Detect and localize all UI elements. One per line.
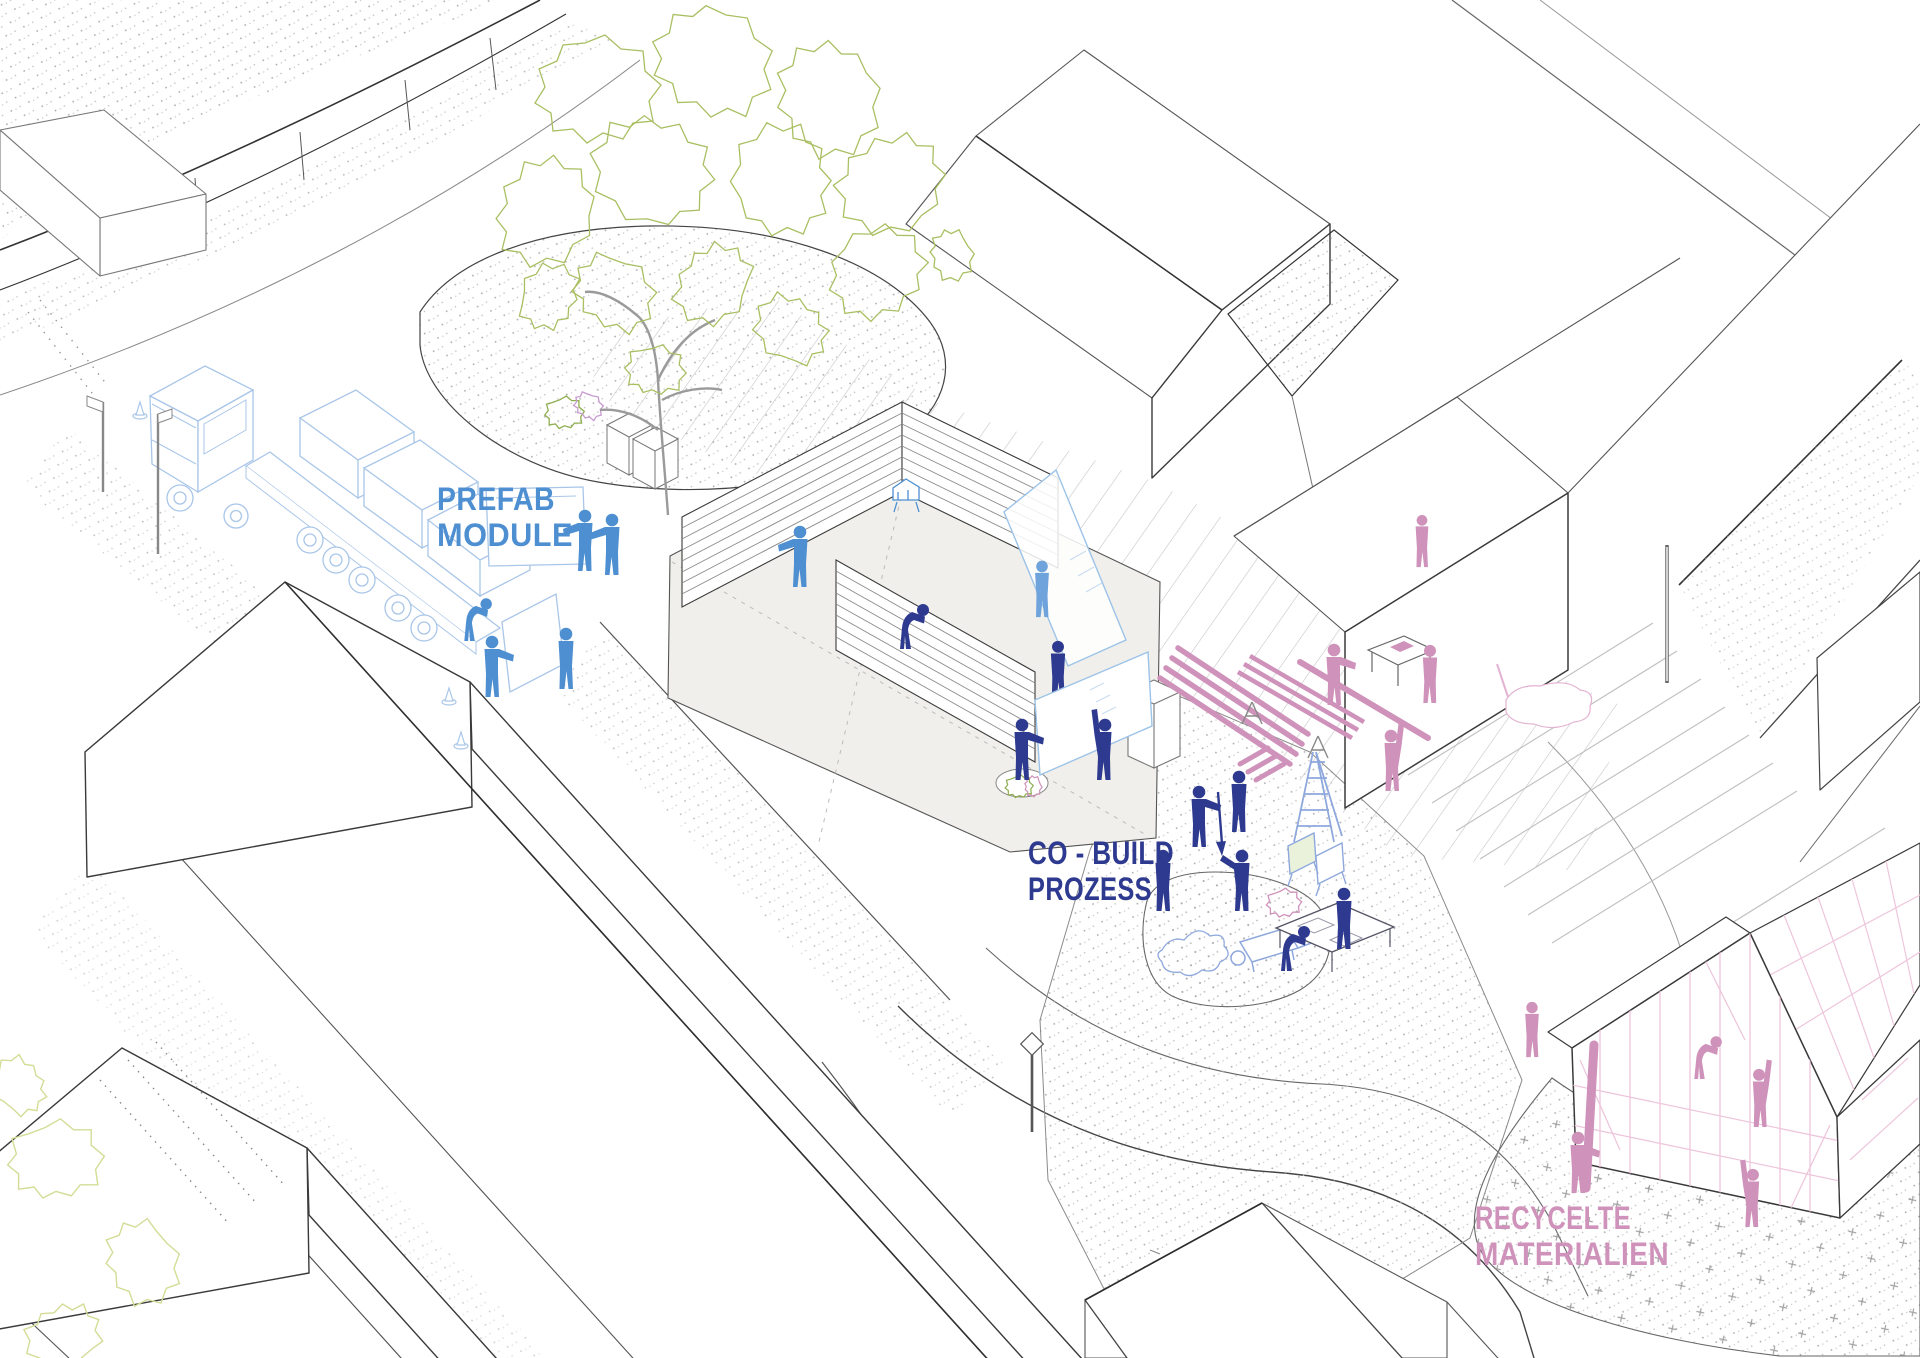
recycled-label-line1: RECYCELTE [1475, 1200, 1631, 1236]
site-axonometric-illustration: PREFAB MODULE CO - BUILD PROZESS RECYCEL… [0, 0, 1920, 1358]
prefab-label-line1: PREFAB [437, 481, 555, 517]
prefab-panel-small [502, 594, 564, 692]
prefab-label-line2: MODULE [437, 517, 573, 553]
material-tarp [1506, 683, 1592, 728]
site-plan-canvas: PREFAB MODULE CO - BUILD PROZESS RECYCEL… [0, 0, 1920, 1358]
building-top-left [0, 110, 206, 276]
recycled-label-line2: MATERIALIEN [1475, 1236, 1669, 1272]
cobuild-label-line1: CO - BUILD [1028, 835, 1174, 871]
label-prefab-module: PREFAB MODULE [437, 481, 573, 553]
cobuild-label-line2: PROZESS [1028, 871, 1152, 907]
